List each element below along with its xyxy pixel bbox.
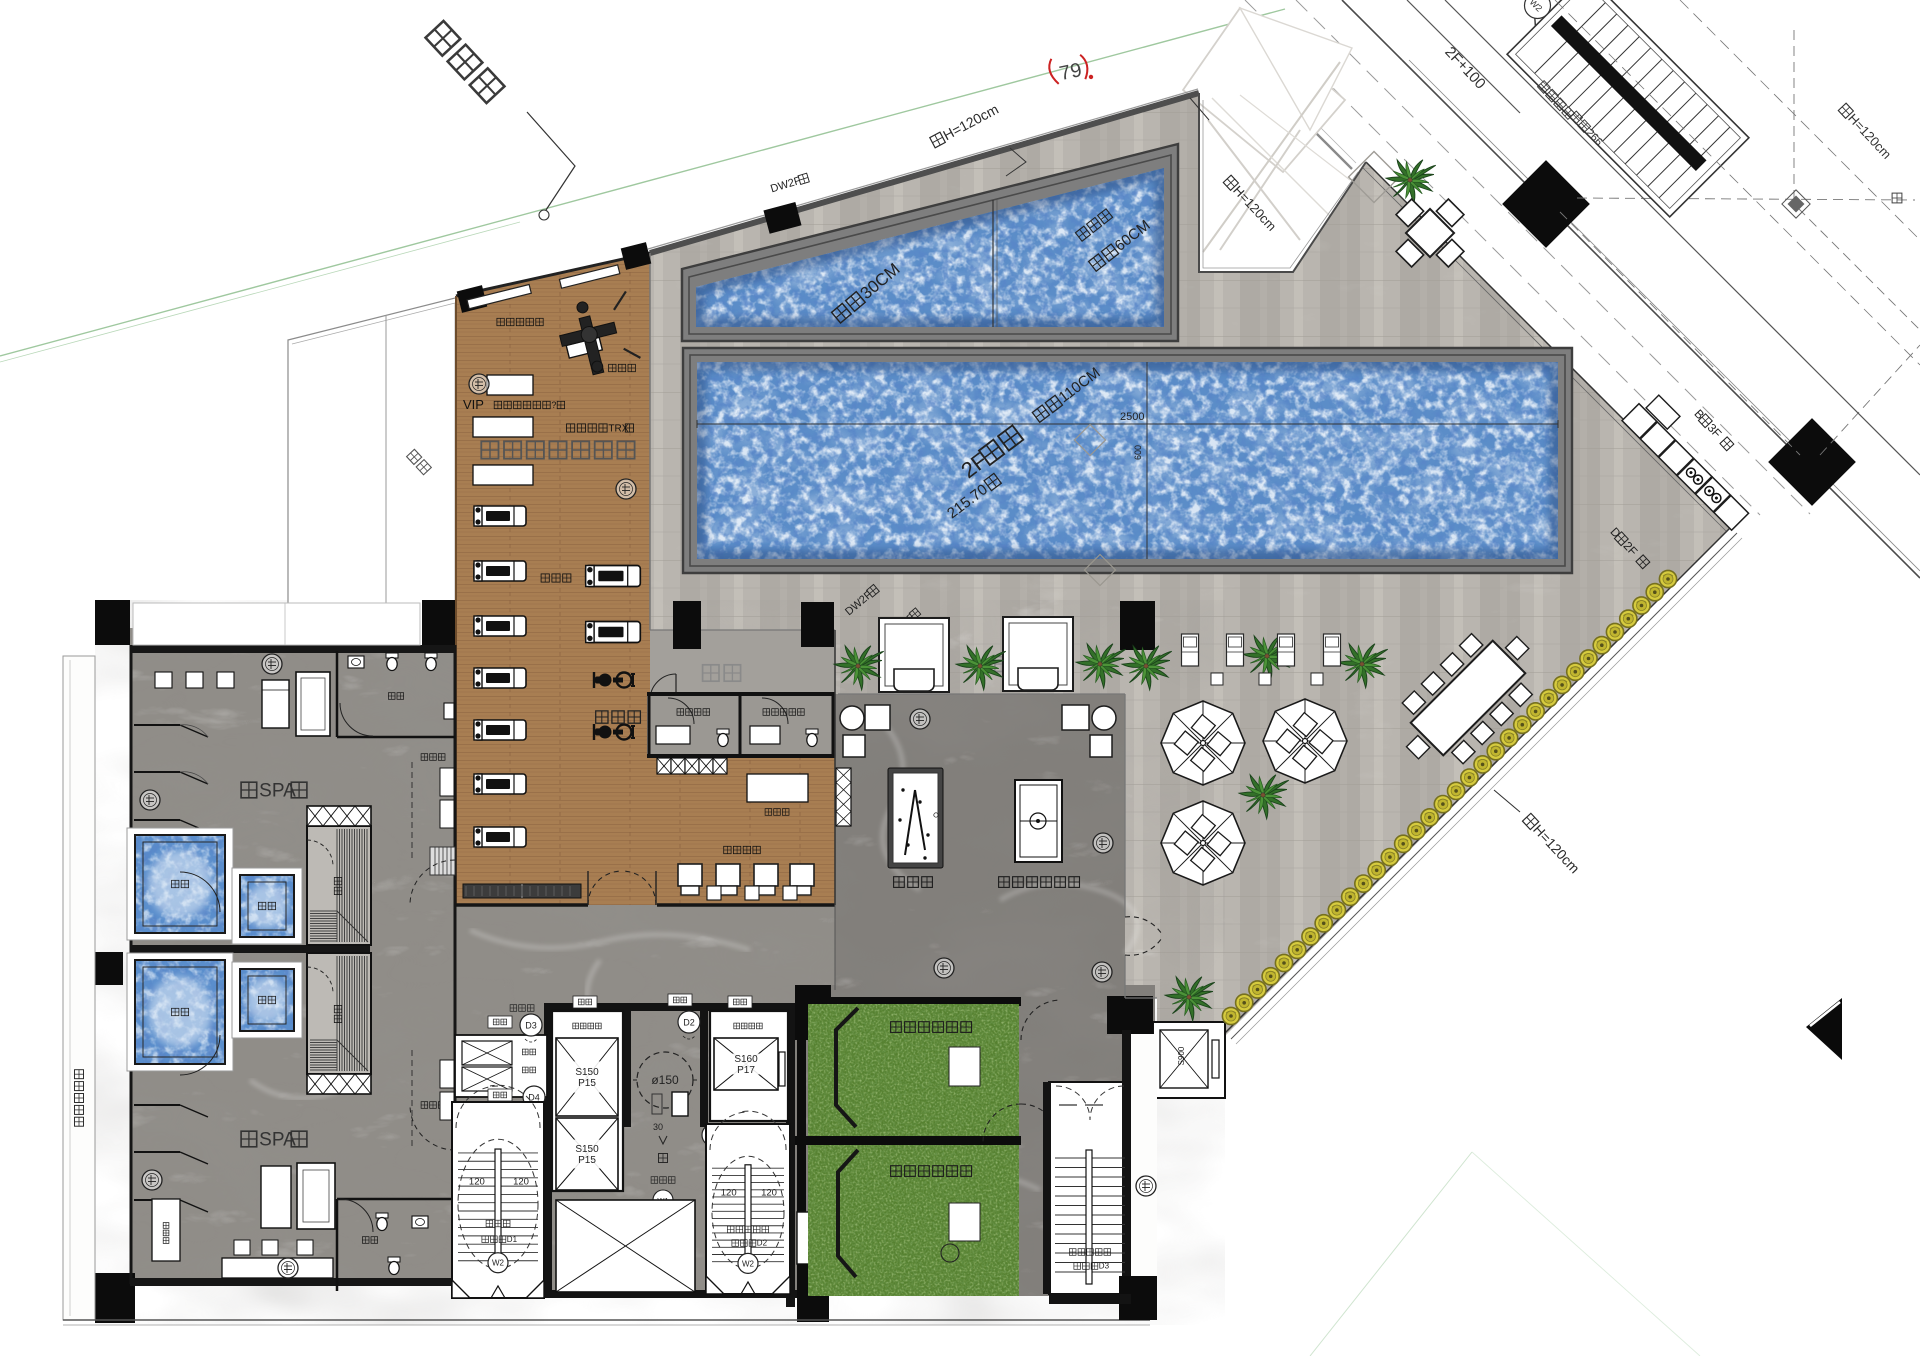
svg-text:S160: S160: [734, 1054, 758, 1065]
svg-text:S150: S150: [575, 1067, 599, 1078]
svg-text:2500: 2500: [1120, 411, 1144, 423]
svg-text:S900: S900: [1177, 1046, 1186, 1065]
svg-text:D1: D1: [507, 1235, 518, 1244]
svg-text:120: 120: [513, 1176, 529, 1187]
svg-text:79: 79: [1057, 59, 1083, 85]
svg-text:W2: W2: [742, 1259, 755, 1268]
svg-text:ø150: ø150: [651, 1073, 679, 1087]
svg-text:P17: P17: [737, 1065, 755, 1076]
svg-text:W2: W2: [492, 1259, 505, 1268]
svg-text:120: 120: [469, 1176, 485, 1187]
svg-text:120: 120: [761, 1187, 777, 1198]
svg-text:P15: P15: [578, 1155, 596, 1166]
svg-text:VIP: VIP: [463, 397, 484, 412]
svg-text:D3: D3: [525, 1021, 537, 1031]
svg-text:600: 600: [1133, 445, 1143, 460]
svg-text:D3: D3: [1099, 1262, 1110, 1271]
svg-text:30: 30: [653, 1122, 663, 1132]
svg-text:S150: S150: [575, 1144, 599, 1155]
svg-text:D2: D2: [757, 1239, 768, 1248]
svg-text:P15: P15: [578, 1078, 596, 1089]
svg-text:D2: D2: [683, 1018, 695, 1028]
svg-text:120: 120: [721, 1187, 737, 1198]
svg-text:?: ?: [551, 400, 556, 410]
